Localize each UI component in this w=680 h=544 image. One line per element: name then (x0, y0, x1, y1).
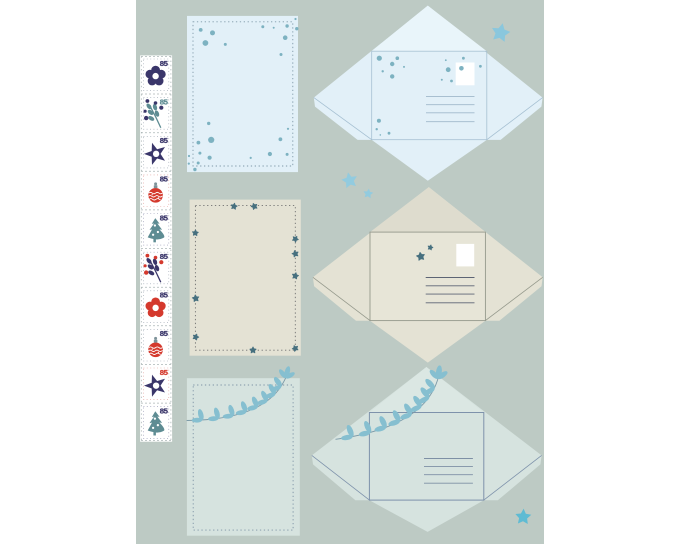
svg-text:85: 85 (160, 291, 169, 300)
svg-text:85: 85 (160, 59, 169, 68)
svg-text:85: 85 (160, 407, 169, 416)
svg-text:85: 85 (160, 368, 169, 377)
svg-text:85: 85 (160, 329, 169, 338)
svg-text:85: 85 (160, 252, 169, 261)
svg-text:85: 85 (160, 175, 169, 184)
svg-text:85: 85 (160, 213, 169, 222)
svg-text:85: 85 (160, 97, 169, 106)
svg-text:85: 85 (160, 136, 169, 145)
